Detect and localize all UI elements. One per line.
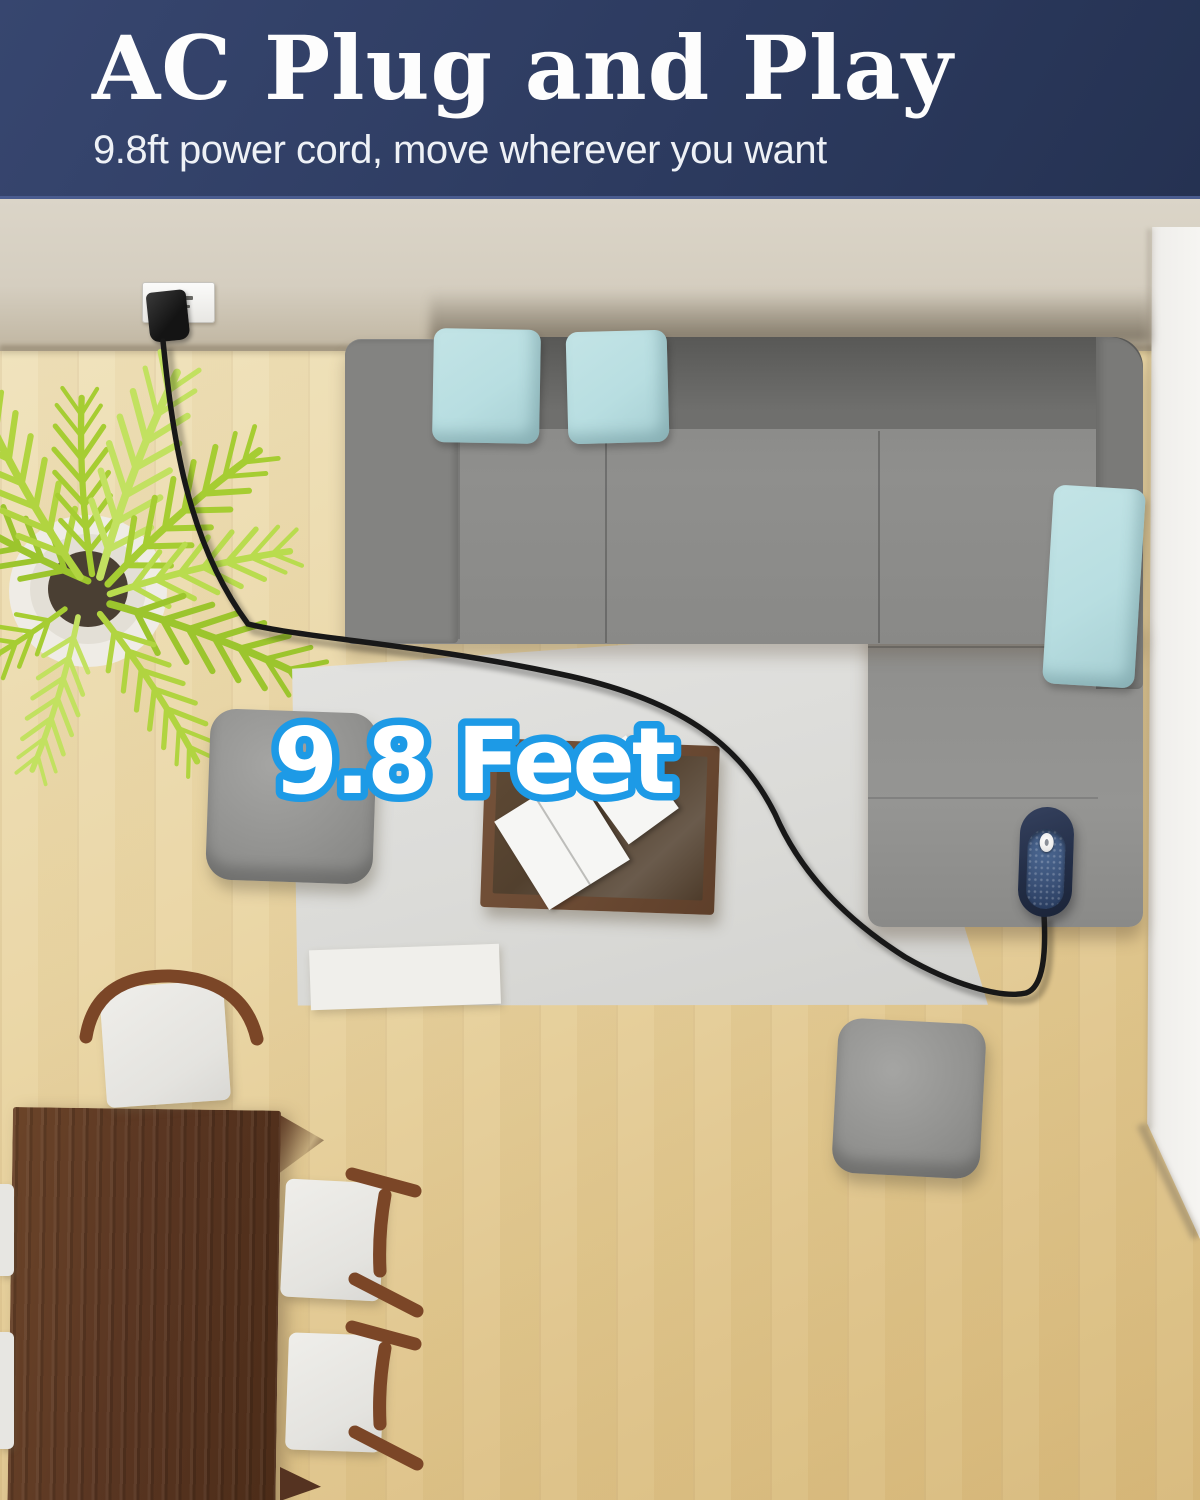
page-title: AC Plug and Play: [92, 24, 954, 112]
power-plug: [145, 289, 190, 343]
white-floor-mat: [309, 944, 501, 1011]
booklet-logo: [599, 772, 608, 784]
dining-chair-seat-partial: [0, 1184, 14, 1276]
dining-chair-seat: [280, 1178, 386, 1301]
sofa-cushion-seam: [605, 431, 607, 643]
header-banner: AC Plug and Play 9.8ft power cord, move …: [0, 0, 1200, 199]
right-wall-panel-shadow: [1147, 229, 1155, 1129]
dining-table: [7, 1107, 281, 1500]
sofa-cushion-seam: [878, 431, 880, 643]
ottoman-cube: [205, 708, 378, 885]
throw-pillow: [432, 328, 541, 444]
sofa-backrest: [458, 337, 1143, 429]
dining-chair-seat-partial: [0, 1332, 14, 1449]
coffee-table: [480, 738, 720, 915]
sofa-cushion-seam: [868, 797, 1098, 799]
product-marketing-image: AC Plug and Play 9.8ft power cord, move …: [0, 0, 1200, 1500]
room-illustration: 9.8 Feet: [0, 199, 1200, 1500]
throw-pillow: [566, 330, 670, 445]
throw-pillow: [1042, 484, 1146, 688]
page-subtitle: 9.8ft power cord, move wherever you want: [93, 128, 827, 172]
plug-in-device: [1017, 806, 1075, 918]
ottoman-cube: [831, 1017, 987, 1180]
dining-chair-seat: [285, 1332, 385, 1452]
dining-chair-seat: [99, 980, 231, 1108]
